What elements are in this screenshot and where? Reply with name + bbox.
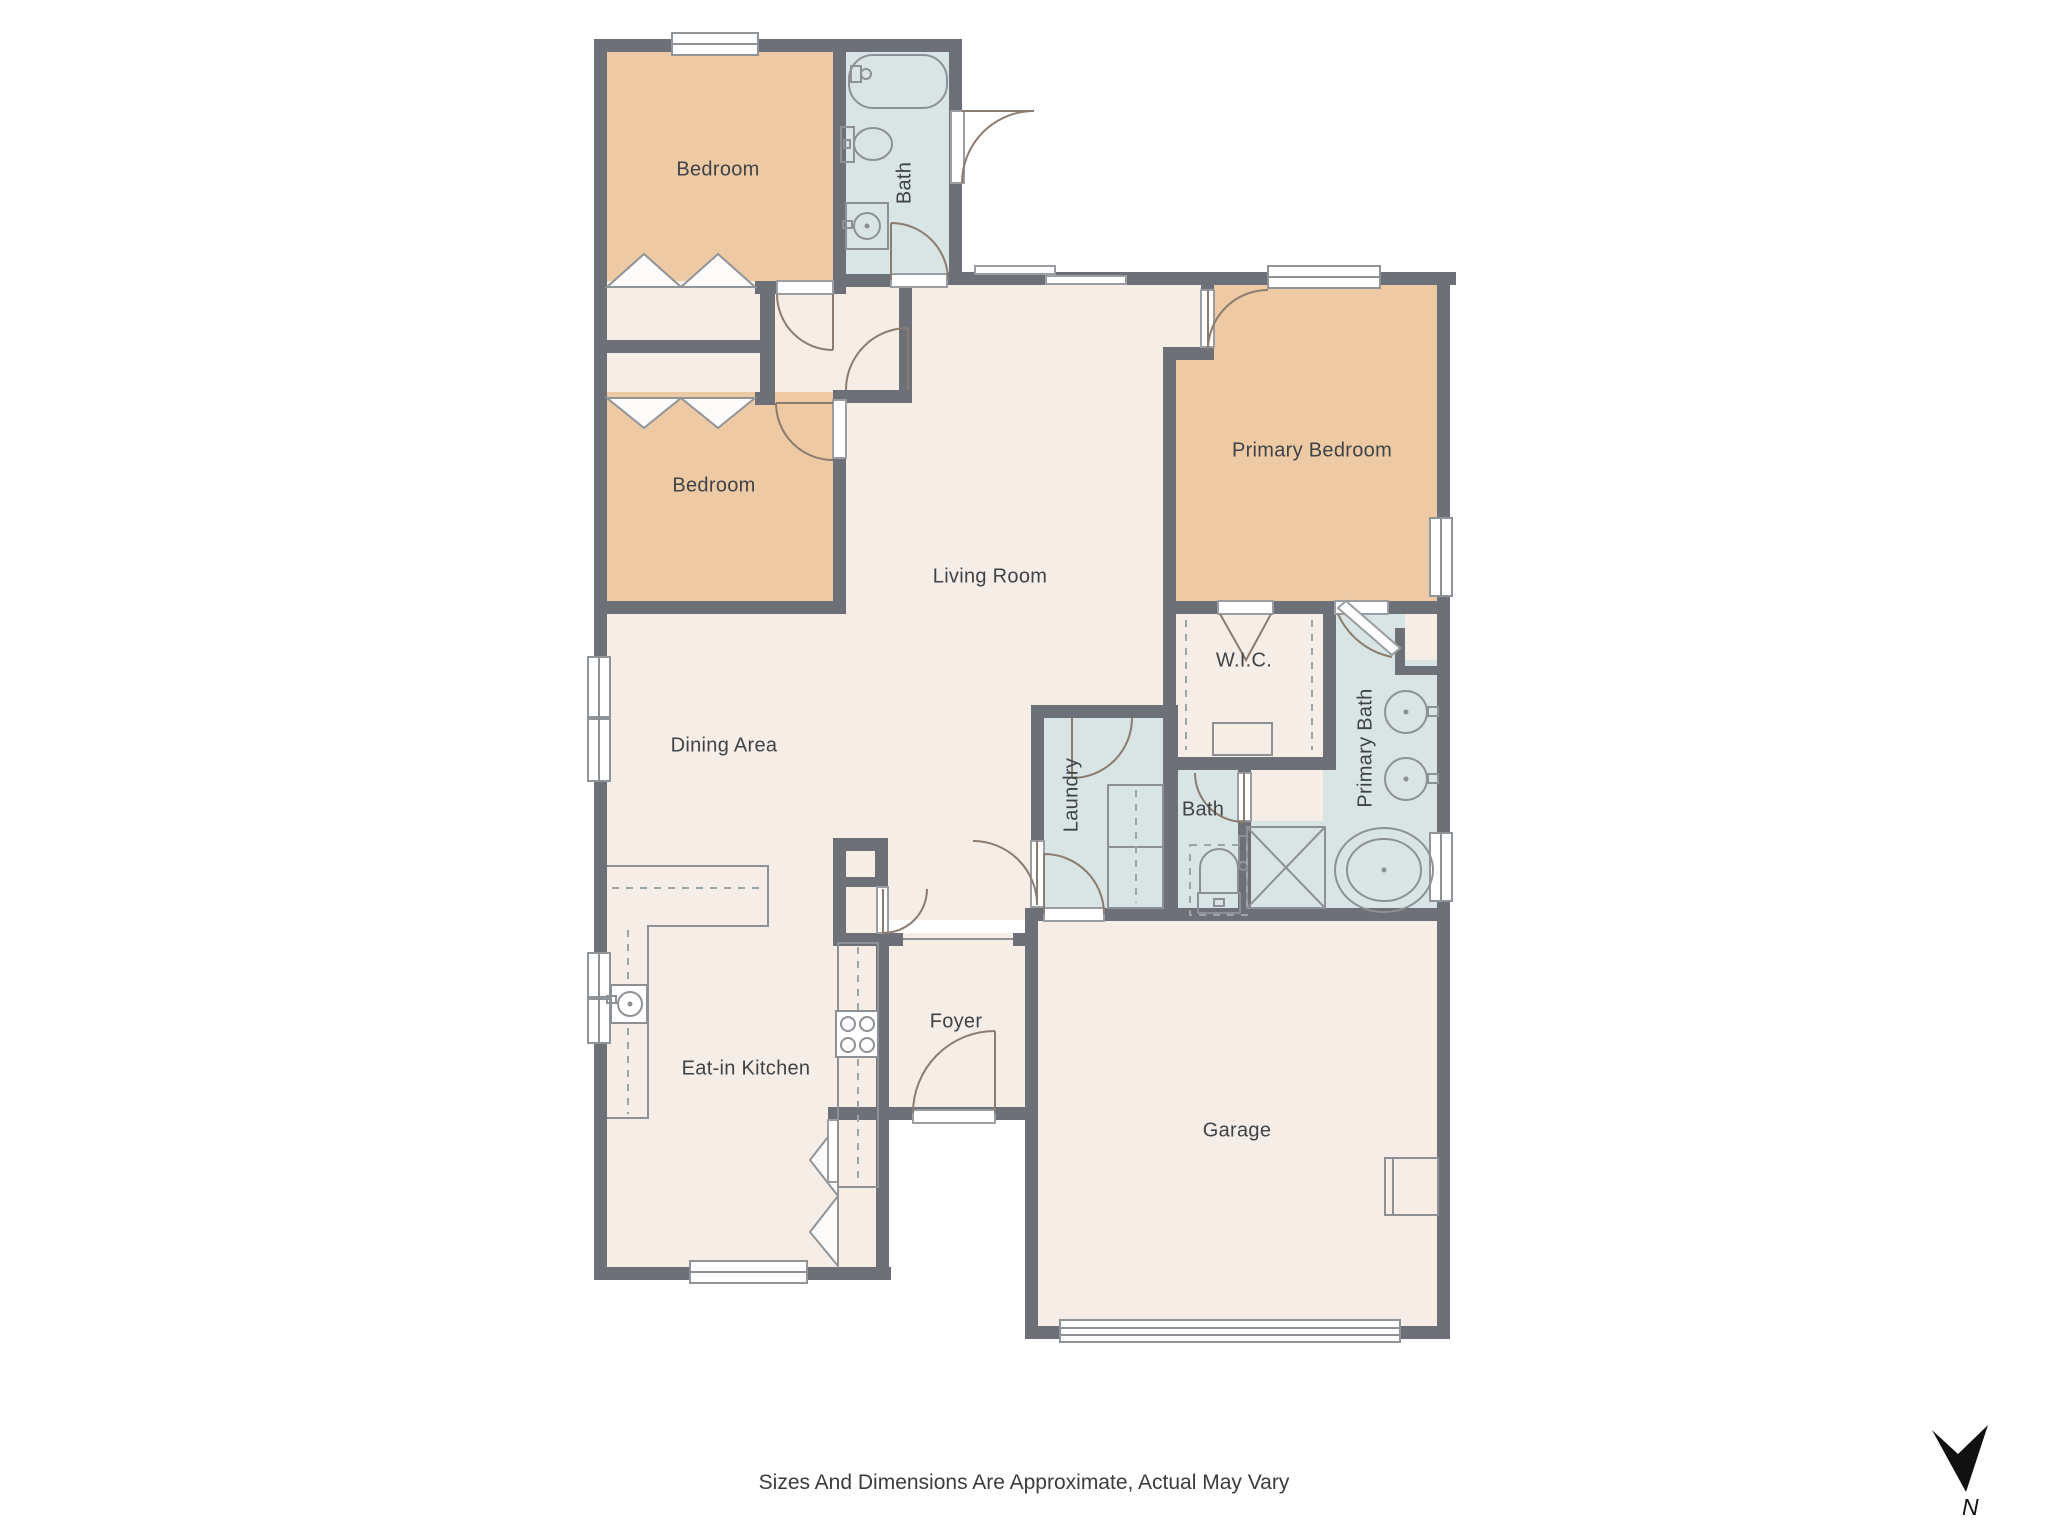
floorplan-canvas: Bedroom Bath Bedroom Primary Bedroom Liv… (0, 0, 2048, 1536)
window-dining-left (588, 657, 610, 781)
window-bedroom1 (672, 33, 758, 55)
compass: N (1918, 1418, 2008, 1528)
garage-door (1060, 1320, 1400, 1342)
disclaimer-text: Sizes And Dimensions Are Approximate, Ac… (759, 1471, 1290, 1495)
window-primary-right (1430, 518, 1452, 596)
room-fills (600, 45, 1444, 1329)
window-kitchen-bottom (690, 1261, 807, 1283)
kitchen-sink (607, 985, 647, 1023)
stove (836, 1011, 878, 1057)
door-bath1-exterior (951, 111, 1034, 183)
north-label: N (1962, 1494, 1979, 1521)
floorplan-drawing (0, 0, 2048, 1536)
window-primary-top (1268, 266, 1380, 288)
